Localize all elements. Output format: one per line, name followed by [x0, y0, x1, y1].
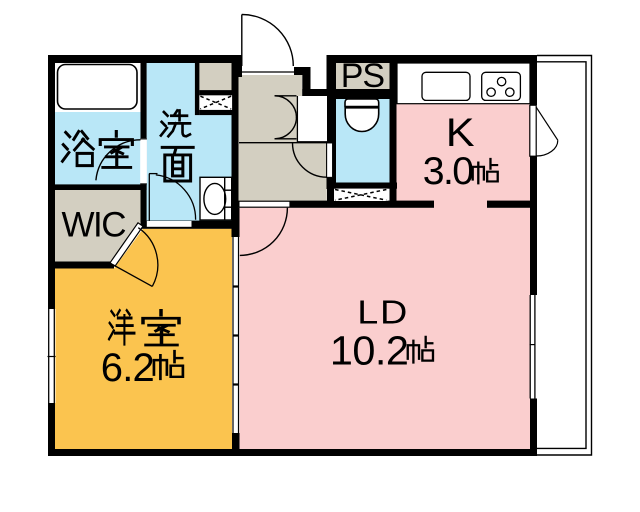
- svg-text:3.0: 3.0: [423, 150, 474, 193]
- svg-text:PS: PS: [341, 57, 385, 95]
- svg-text:WIC: WIC: [62, 205, 126, 244]
- svg-text:10.2: 10.2: [330, 328, 408, 374]
- svg-text:6.2: 6.2: [101, 346, 154, 390]
- svg-text:K: K: [446, 110, 475, 155]
- svg-text:LD: LD: [357, 293, 409, 330]
